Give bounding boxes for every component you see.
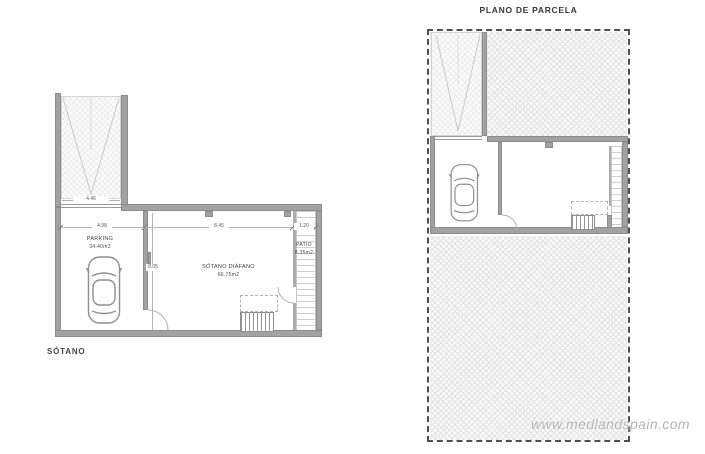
room-label-parking: PARKING 34.40m2	[72, 235, 128, 251]
wall-pilaster	[148, 252, 151, 264]
floorplan-sheet: 4.46 4.98 8.45 1.20 8.05 PARKING 34.40m2…	[0, 0, 705, 454]
dimension-diafano-width: 8.45	[209, 223, 229, 230]
plan-caption-sotano: SÓTANO	[47, 347, 85, 356]
driveway-wall-left	[55, 93, 61, 207]
car-icon	[87, 257, 122, 323]
room-area: 34.40m2	[72, 243, 128, 251]
dimension-parking-width: 4.98	[92, 223, 112, 230]
room-name: PARKING	[72, 235, 128, 243]
room-name: PATIO	[292, 241, 316, 249]
dimension-line-depth	[152, 213, 153, 330]
dimension-driveway-width: 4.46	[73, 196, 109, 203]
door-arc-dividing	[148, 310, 168, 330]
wall-pilaster	[284, 211, 291, 217]
room-label-diafano: SÓTANO DIÁFANO 66.75m2	[191, 263, 266, 279]
driveway-ramp-hatch	[61, 96, 121, 199]
dimension-room-depth: 8.05	[146, 264, 160, 271]
room-label-patio: PATIO 8.35m2	[292, 241, 316, 257]
outer-wall-right	[316, 211, 322, 330]
staircase	[240, 312, 274, 332]
parcel-boundary-dashed	[427, 29, 630, 442]
stair-landing-dashed	[240, 295, 278, 312]
garage-door	[61, 204, 121, 208]
door-arc-patio	[278, 287, 294, 303]
outer-wall-top	[121, 204, 322, 211]
room-name: SÓTANO DIÁFANO	[191, 263, 266, 271]
watermark-text: www.medlandspain.com	[531, 416, 690, 432]
driveway-wall-right	[121, 95, 128, 207]
outer-wall-bottom	[55, 330, 322, 337]
dimension-patio-width: 1.20	[294, 223, 314, 230]
wall-pilaster	[205, 211, 213, 217]
patio-wall-lower	[293, 303, 296, 330]
room-area: 8.35m2	[292, 249, 316, 257]
plan-title-parcela: PLANO DE PARCELA	[427, 5, 630, 15]
room-area: 66.75m2	[191, 271, 266, 279]
